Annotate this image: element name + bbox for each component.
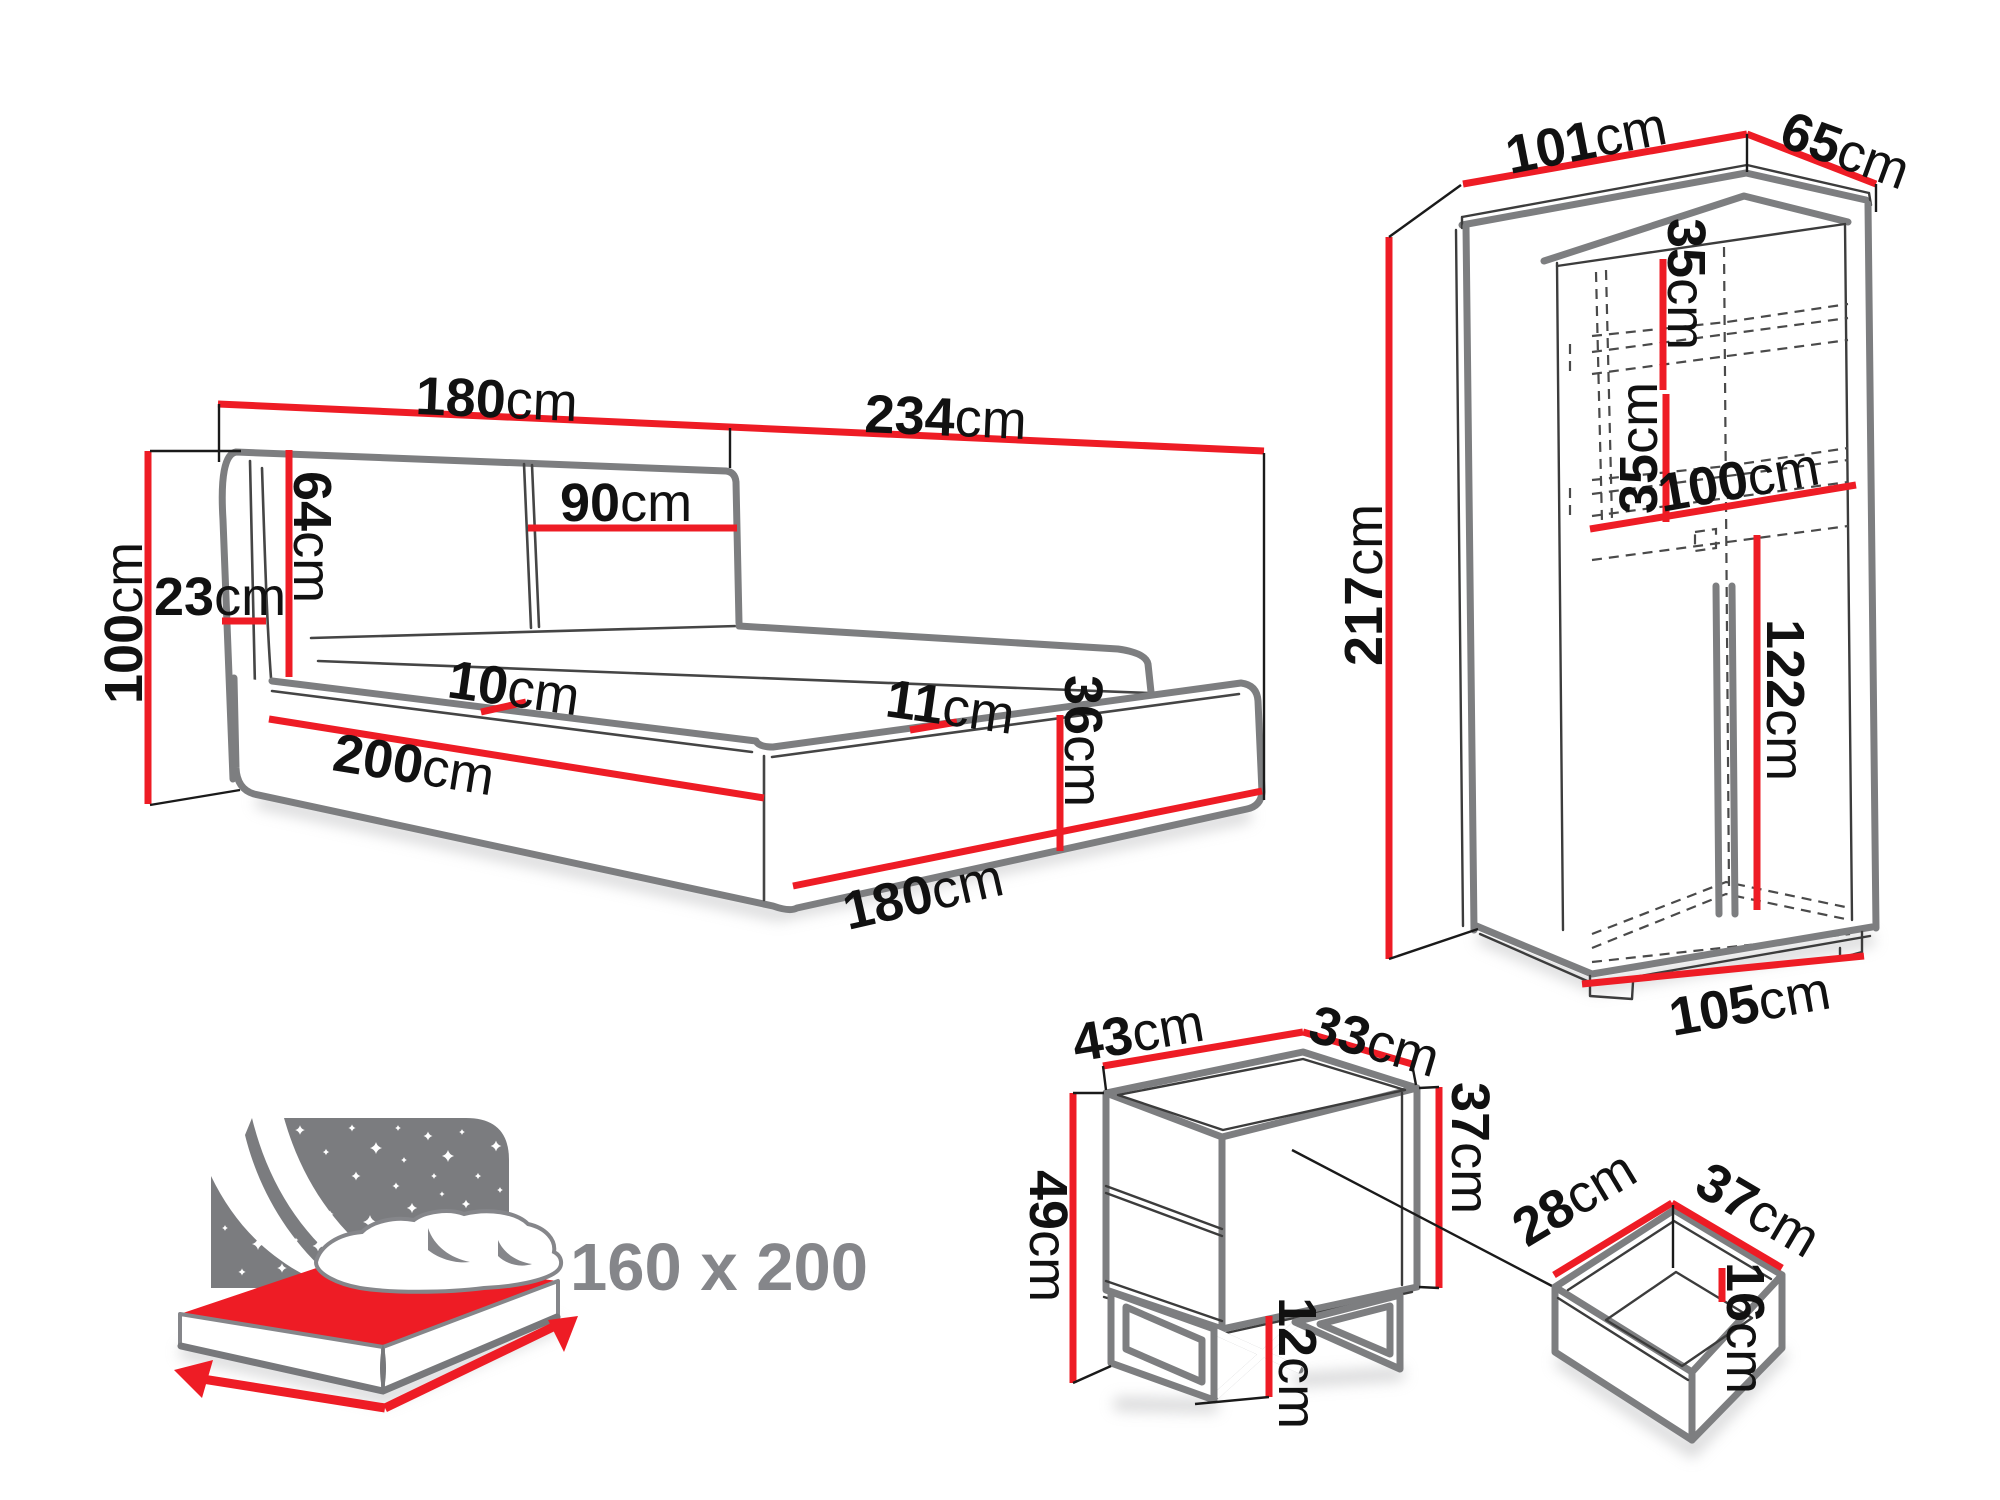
svg-text:160 x 200: 160 x 200 [570,1230,868,1305]
svg-text:122cm: 122cm [1755,619,1815,781]
svg-text:35cm: 35cm [1656,218,1716,350]
svg-text:37cm: 37cm [1440,1082,1500,1214]
svg-text:49cm: 49cm [1018,1170,1078,1302]
svg-text:12cm: 12cm [1267,1297,1327,1429]
svg-text:64cm: 64cm [282,471,342,603]
svg-text:234cm: 234cm [863,384,1028,451]
svg-text:23cm: 23cm [154,567,286,627]
svg-text:217cm: 217cm [1334,504,1394,666]
svg-text:36cm: 36cm [1053,675,1113,807]
svg-text:90cm: 90cm [560,473,692,533]
svg-text:100cm: 100cm [94,542,154,704]
svg-text:180cm: 180cm [414,366,579,433]
svg-text:16cm: 16cm [1715,1262,1775,1394]
